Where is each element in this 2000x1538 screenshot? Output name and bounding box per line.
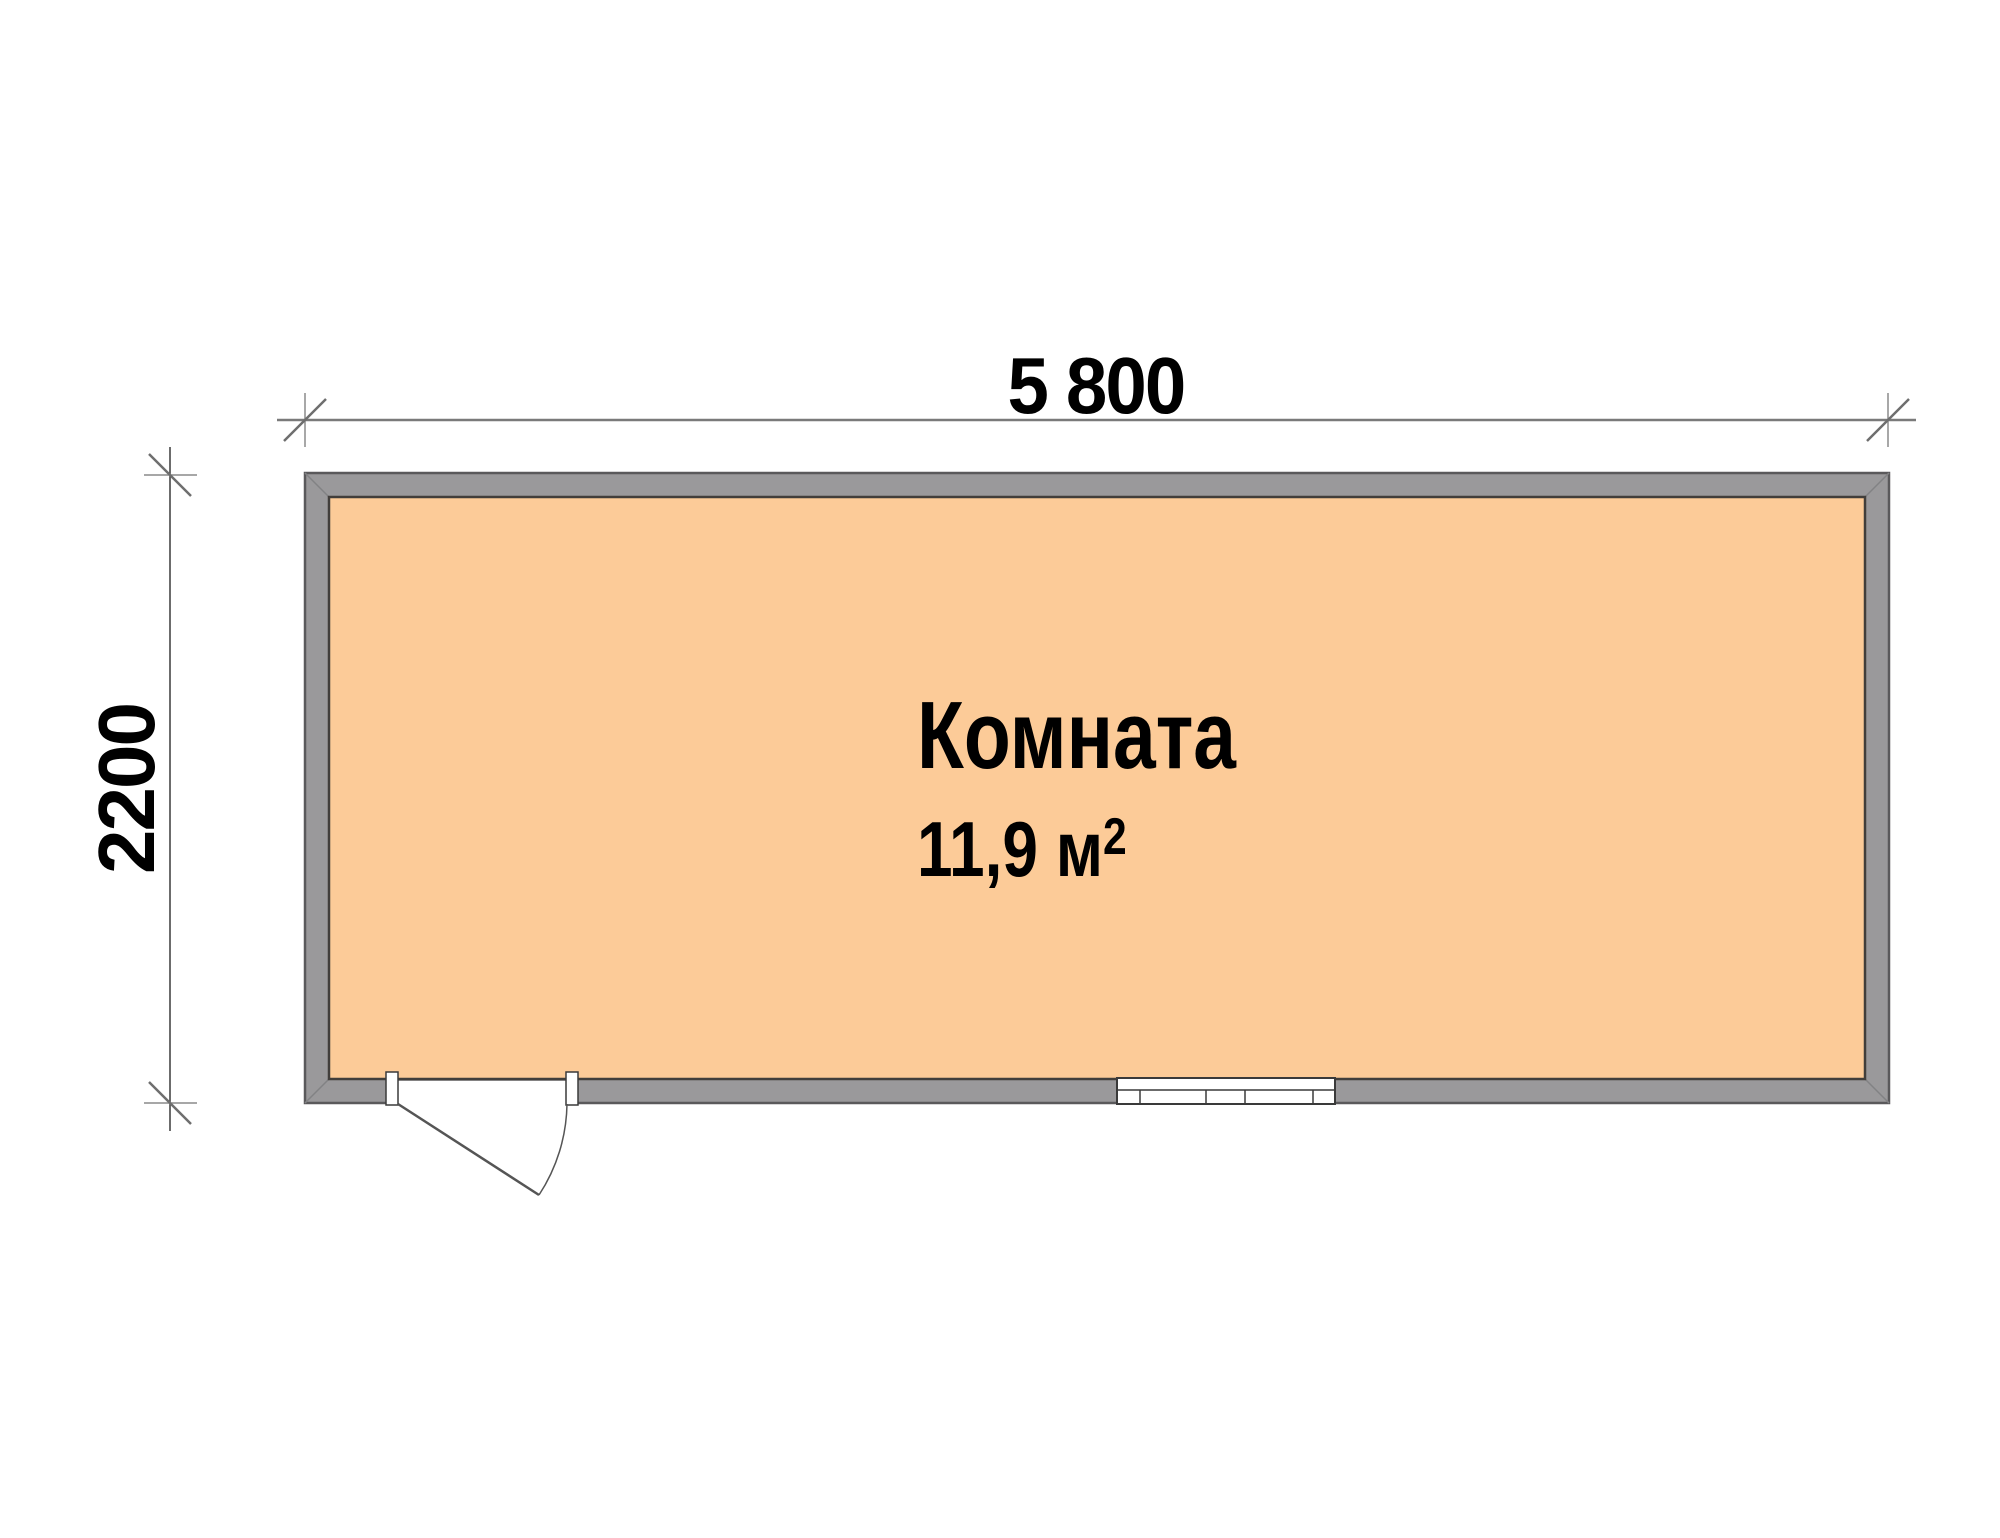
window-frame (1117, 1078, 1335, 1104)
door-jamb-right (566, 1072, 578, 1105)
dimension-width-label: 5 800 (910, 346, 1282, 426)
room-name-label: Комната (917, 688, 1236, 784)
room-area-value: 11,9 м (917, 805, 1103, 893)
dimension-height-label: 2200 (87, 589, 167, 989)
door (386, 1072, 578, 1195)
door-jamb-left (386, 1072, 398, 1105)
floor-plan-canvas: 5 800 2200 Комната 11,9 м2 (0, 0, 2000, 1538)
door-opening-gap (398, 1081, 566, 1108)
door-swing-arc (539, 1104, 567, 1195)
room-area-exponent: 2 (1103, 808, 1127, 866)
window (1117, 1078, 1335, 1104)
door-leaf (398, 1104, 539, 1195)
room-area-label: 11,9 м2 (917, 810, 1127, 888)
